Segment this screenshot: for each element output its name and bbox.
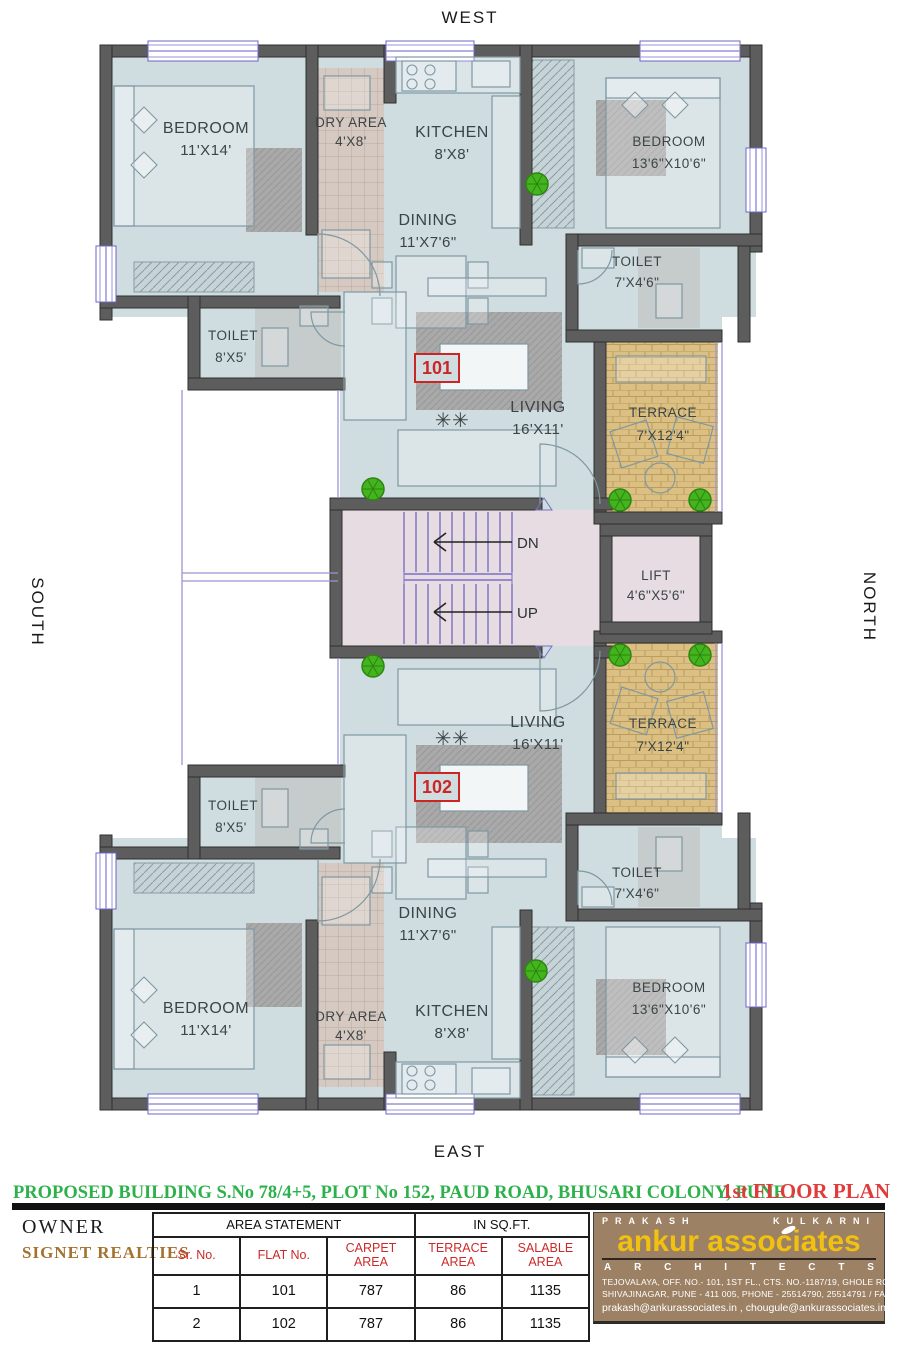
room-label-bedroom1-101: BEDROOM [163,120,249,137]
room-dims-bedroom2-101: 13'6"X10'6" [632,156,706,171]
area-statement-table: AREA STATEMENT IN SQ.FT. Sr. No. FLAT No… [152,1212,590,1342]
architect-subtitle: ARCHITECTS [602,1260,876,1276]
room-dims-dry-102: 4'X8' [335,1028,367,1043]
room-label-terrace-102: TERRACE [629,716,697,731]
table-cell: 86 [415,1308,502,1341]
architect-subtitle-letter: I [724,1262,727,1273]
room-dims-terrace-101: 7'X12'4" [637,428,690,443]
room-dims-dining-101: 11'X7'6" [399,234,456,251]
compass-south: SOUTH [27,567,47,657]
stairs-up-label: UP [517,605,538,622]
coffee-table-symbol-102: ✳✳ [435,728,470,750]
architect-address1: TEJOVALAYA, OFF. NO.- 101, 1ST FL., CTS.… [602,1276,876,1288]
room-label-living-102: LIVING [510,714,565,731]
room-dims-toilet2-101: 7'X4'6" [615,275,660,290]
architect-subtitle-letter: H [694,1262,701,1273]
brand-text: ankur associates [617,1225,860,1258]
lift-label: LIFT [641,568,671,583]
room-dims-bedroom1-101: 11'X14' [180,142,232,159]
room-label-toilet1-101: TOILET [208,328,258,343]
project-title: PROPOSED BUILDING S.No 78/4+5, PLOT No 1… [13,1183,795,1204]
room-dims-bedroom2-102: 13'6"X10'6" [632,1002,706,1017]
architect-block: PRAKASH KULKARNI ankur associates ARCHIT… [593,1212,885,1324]
table-cell: 1 [153,1275,240,1308]
room-label-dry-102: DRY AREA [315,1009,387,1024]
room-label-dining-102: DINING [399,905,458,922]
room-label-toilet2-102: TOILET [612,865,662,880]
architect-subtitle-letter: R [634,1262,641,1273]
owner-label: OWNER [22,1216,105,1239]
room-label-terrace-101: TERRACE [629,405,697,420]
room-dims-toilet1-102: 8'X5' [215,820,247,835]
room-label-bedroom2-102: BEDROOM [632,980,705,995]
architect-subtitle-letter: C [664,1262,671,1273]
architect-subtitle-letter: T [750,1262,756,1273]
room-label-kitchen-102: KITCHEN [415,1003,489,1020]
architect-brand: ankur associates [602,1226,876,1260]
room-dims-kitchen-102: 8'X8' [435,1025,470,1042]
col-header-flat-no: FLAT No. [240,1237,327,1275]
compass-north: NORTH [859,562,879,652]
room-dims-toilet2-102: 7'X4'6" [615,886,660,901]
table-cell: 102 [240,1308,327,1341]
room-label-living-101: LIVING [510,399,565,416]
table-header-area-statement: AREA STATEMENT [153,1213,415,1237]
flat-number-102: 102 [422,777,452,797]
architect-subtitle-letter: C [808,1262,815,1273]
room-dims-living-102: 16'X11' [512,736,564,753]
plan-title: 1st FLOOR PLAN [722,1179,890,1204]
room-dims-dining-102: 11'X7'6" [399,927,456,944]
table-cell: 2 [153,1308,240,1341]
col-header-terrace-area: TERRACE AREA [415,1237,502,1275]
architect-subtitle-letter: S [867,1262,874,1273]
room-label-toilet1-102: TOILET [208,798,258,813]
room-dims-dry-101: 4'X8' [335,134,367,149]
architect-subtitle-letter: A [604,1262,611,1273]
architect-subtitle-letter: T [838,1262,844,1273]
divider-bar [12,1203,885,1210]
compass-west: WEST [425,8,515,28]
col-header-salable-area: SALABLE AREA [502,1237,589,1275]
col-header-sr-no: Sr. No. [153,1237,240,1275]
floor-plan-sheet: BEDROOM 11'X14' DRY AREA 4'X8' KITCHEN 8… [0,0,900,1345]
table-cell: 787 [327,1275,414,1308]
compass-east: EAST [415,1142,505,1162]
architect-subtitle-letter: E [779,1262,786,1273]
table-cell: 86 [415,1275,502,1308]
room-dims-toilet1-101: 8'X5' [215,350,247,365]
floor-plan-svg: BEDROOM 11'X14' DRY AREA 4'X8' KITCHEN 8… [0,0,900,1170]
room-label-dining-101: DINING [399,212,458,229]
flat-number-101: 101 [422,358,452,378]
lift-dims: 4'6"X5'6" [627,588,685,603]
table-cell: 787 [327,1308,414,1341]
room-dims-bedroom1-102: 11'X14' [180,1022,232,1039]
table-cell: 1135 [502,1275,589,1308]
table-cell: 1135 [502,1308,589,1341]
room-label-bedroom2-101: BEDROOM [632,134,705,149]
room-label-dry-101: DRY AREA [315,115,387,130]
coffee-table-symbol-101: ✳✳ [435,410,470,432]
room-label-toilet2-101: TOILET [612,254,662,269]
room-label-bedroom1-102: BEDROOM [163,1000,249,1017]
architect-emails: prakash@ankurassociates.in , chougule@an… [602,1301,876,1316]
room-label-kitchen-101: KITCHEN [415,124,489,141]
room-dims-terrace-102: 7'X12'4" [637,739,690,754]
room-dims-kitchen-101: 8'X8' [435,146,470,163]
table-header-in-sqft: IN SQ.FT. [415,1213,589,1237]
room-dims-living-101: 16'X11' [512,421,564,438]
table-cell: 101 [240,1275,327,1308]
col-header-carpet-area: CARPET AREA [327,1237,414,1275]
stairs-dn-label: DN [517,535,539,552]
architect-address2: SHIVAJINAGAR, PUNE - 411 005, PHONE - 25… [602,1288,876,1300]
